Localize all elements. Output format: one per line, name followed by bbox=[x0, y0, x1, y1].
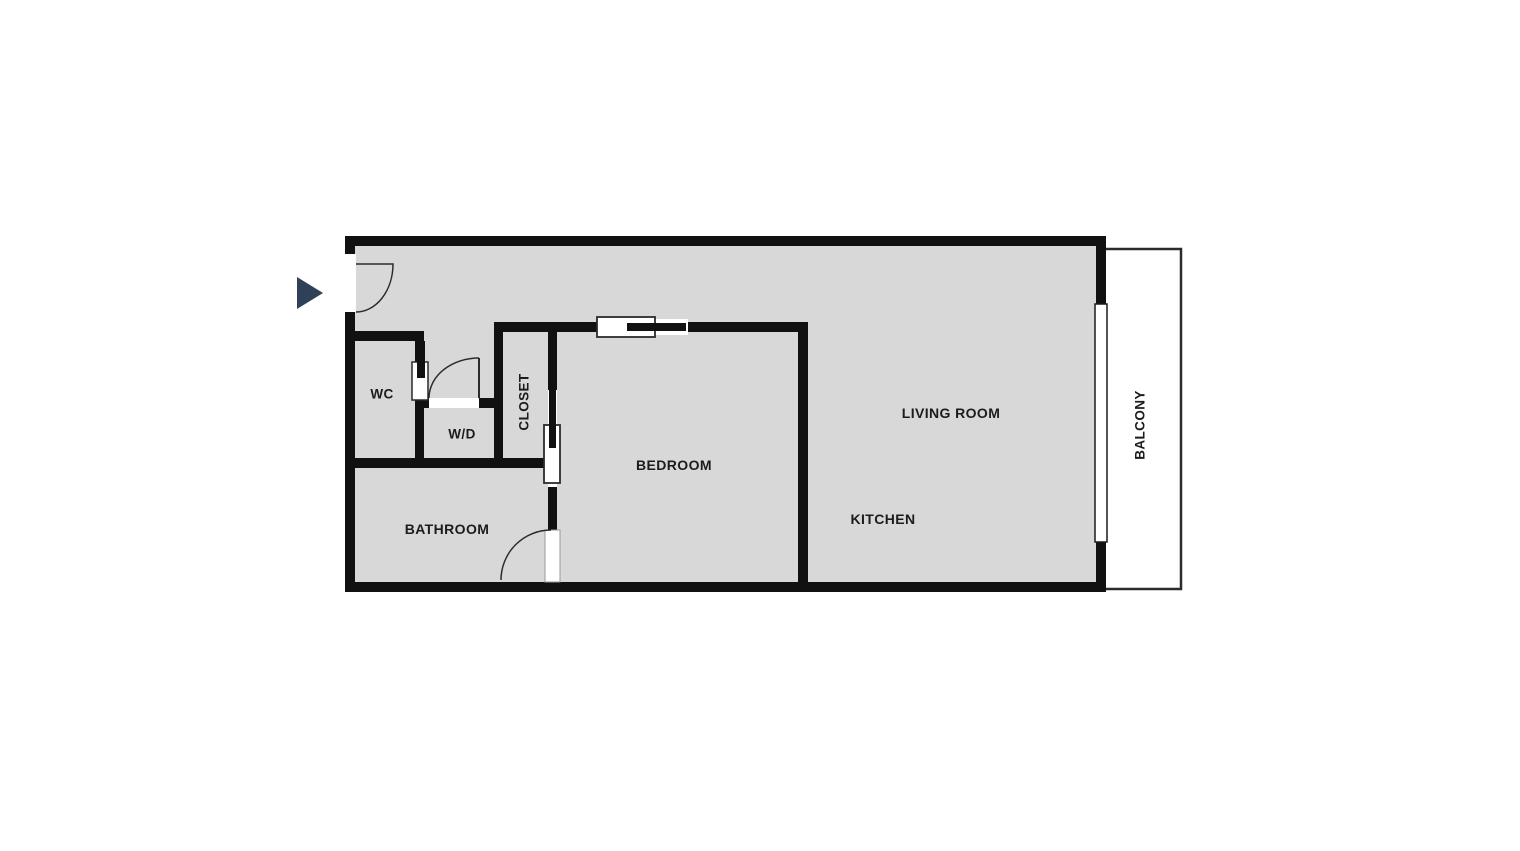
bedroom-top-door-panel bbox=[627, 323, 686, 331]
floorplan-drawing bbox=[0, 0, 1520, 851]
wall-right-lower bbox=[1096, 542, 1106, 592]
room-label-bathroom: BATHROOM bbox=[405, 521, 490, 537]
wall-left-lower bbox=[345, 312, 355, 592]
room-label-living-room: LIVING ROOM bbox=[902, 405, 1001, 421]
wall-closet-left bbox=[494, 322, 503, 468]
wall-bedroom-left-upper bbox=[548, 322, 557, 390]
room-label-kitchen: KITCHEN bbox=[850, 511, 915, 527]
wc-pocket-door-panel bbox=[417, 341, 425, 378]
balcony-window bbox=[1095, 304, 1107, 542]
wall-bathroom-top bbox=[345, 458, 544, 468]
wd-door-opening bbox=[429, 398, 479, 408]
wall-bottom bbox=[345, 582, 1106, 592]
wall-bedroom-right bbox=[798, 322, 808, 592]
wall-bedroom-left-lower bbox=[548, 487, 557, 530]
room-label-wc: WC bbox=[370, 387, 393, 402]
entry-arrow-icon bbox=[297, 277, 323, 309]
room-label-balcony: BALCONY bbox=[1133, 390, 1148, 460]
wall-left-upper bbox=[345, 236, 355, 255]
wall-top bbox=[345, 236, 1106, 246]
floorplan-canvas: WC W/D CLOSET BATHROOM BEDROOM LIVING RO… bbox=[0, 0, 1520, 851]
wall-bedroom-top-left bbox=[494, 322, 597, 332]
entry-opening bbox=[344, 254, 356, 312]
room-label-closet: CLOSET bbox=[517, 373, 532, 430]
wall-right-upper bbox=[1096, 236, 1106, 304]
wall-bedroom-top-right bbox=[688, 322, 808, 332]
bathroom-door-leaf bbox=[545, 530, 560, 582]
wall-hallway-bottom bbox=[345, 331, 423, 341]
room-label-bedroom: BEDROOM bbox=[636, 457, 712, 473]
bedroom-side-door-panel bbox=[549, 390, 556, 448]
room-label-wd: W/D bbox=[448, 427, 475, 442]
